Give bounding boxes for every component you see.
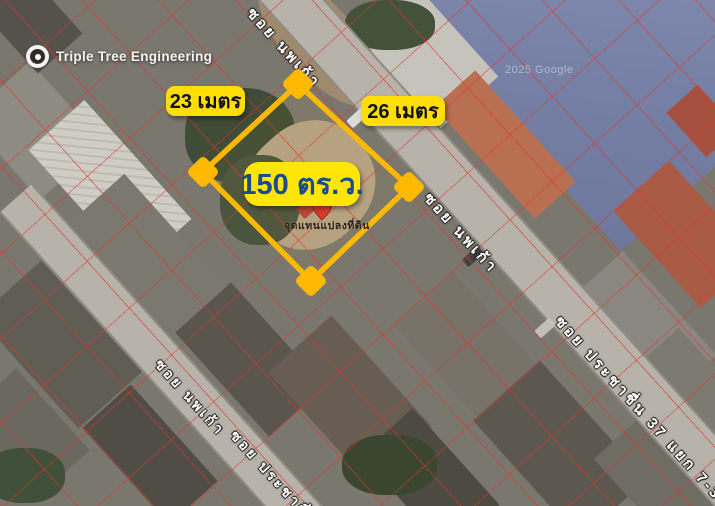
area-label-150sqwah: 150 ตร.ว. <box>244 162 360 206</box>
measure-label-26m: 26 เมตร <box>361 96 445 126</box>
plot-boundary-overlay <box>0 0 715 506</box>
pin-caption: จุดแทนแปลงที่ดิน <box>284 217 384 234</box>
map-canvas: ซอย นพเก้า ซอย นพเก้า ซอย ประชาชื่น 37 แ… <box>0 0 715 506</box>
measure-label-23m: 23 เมตร <box>166 86 245 116</box>
